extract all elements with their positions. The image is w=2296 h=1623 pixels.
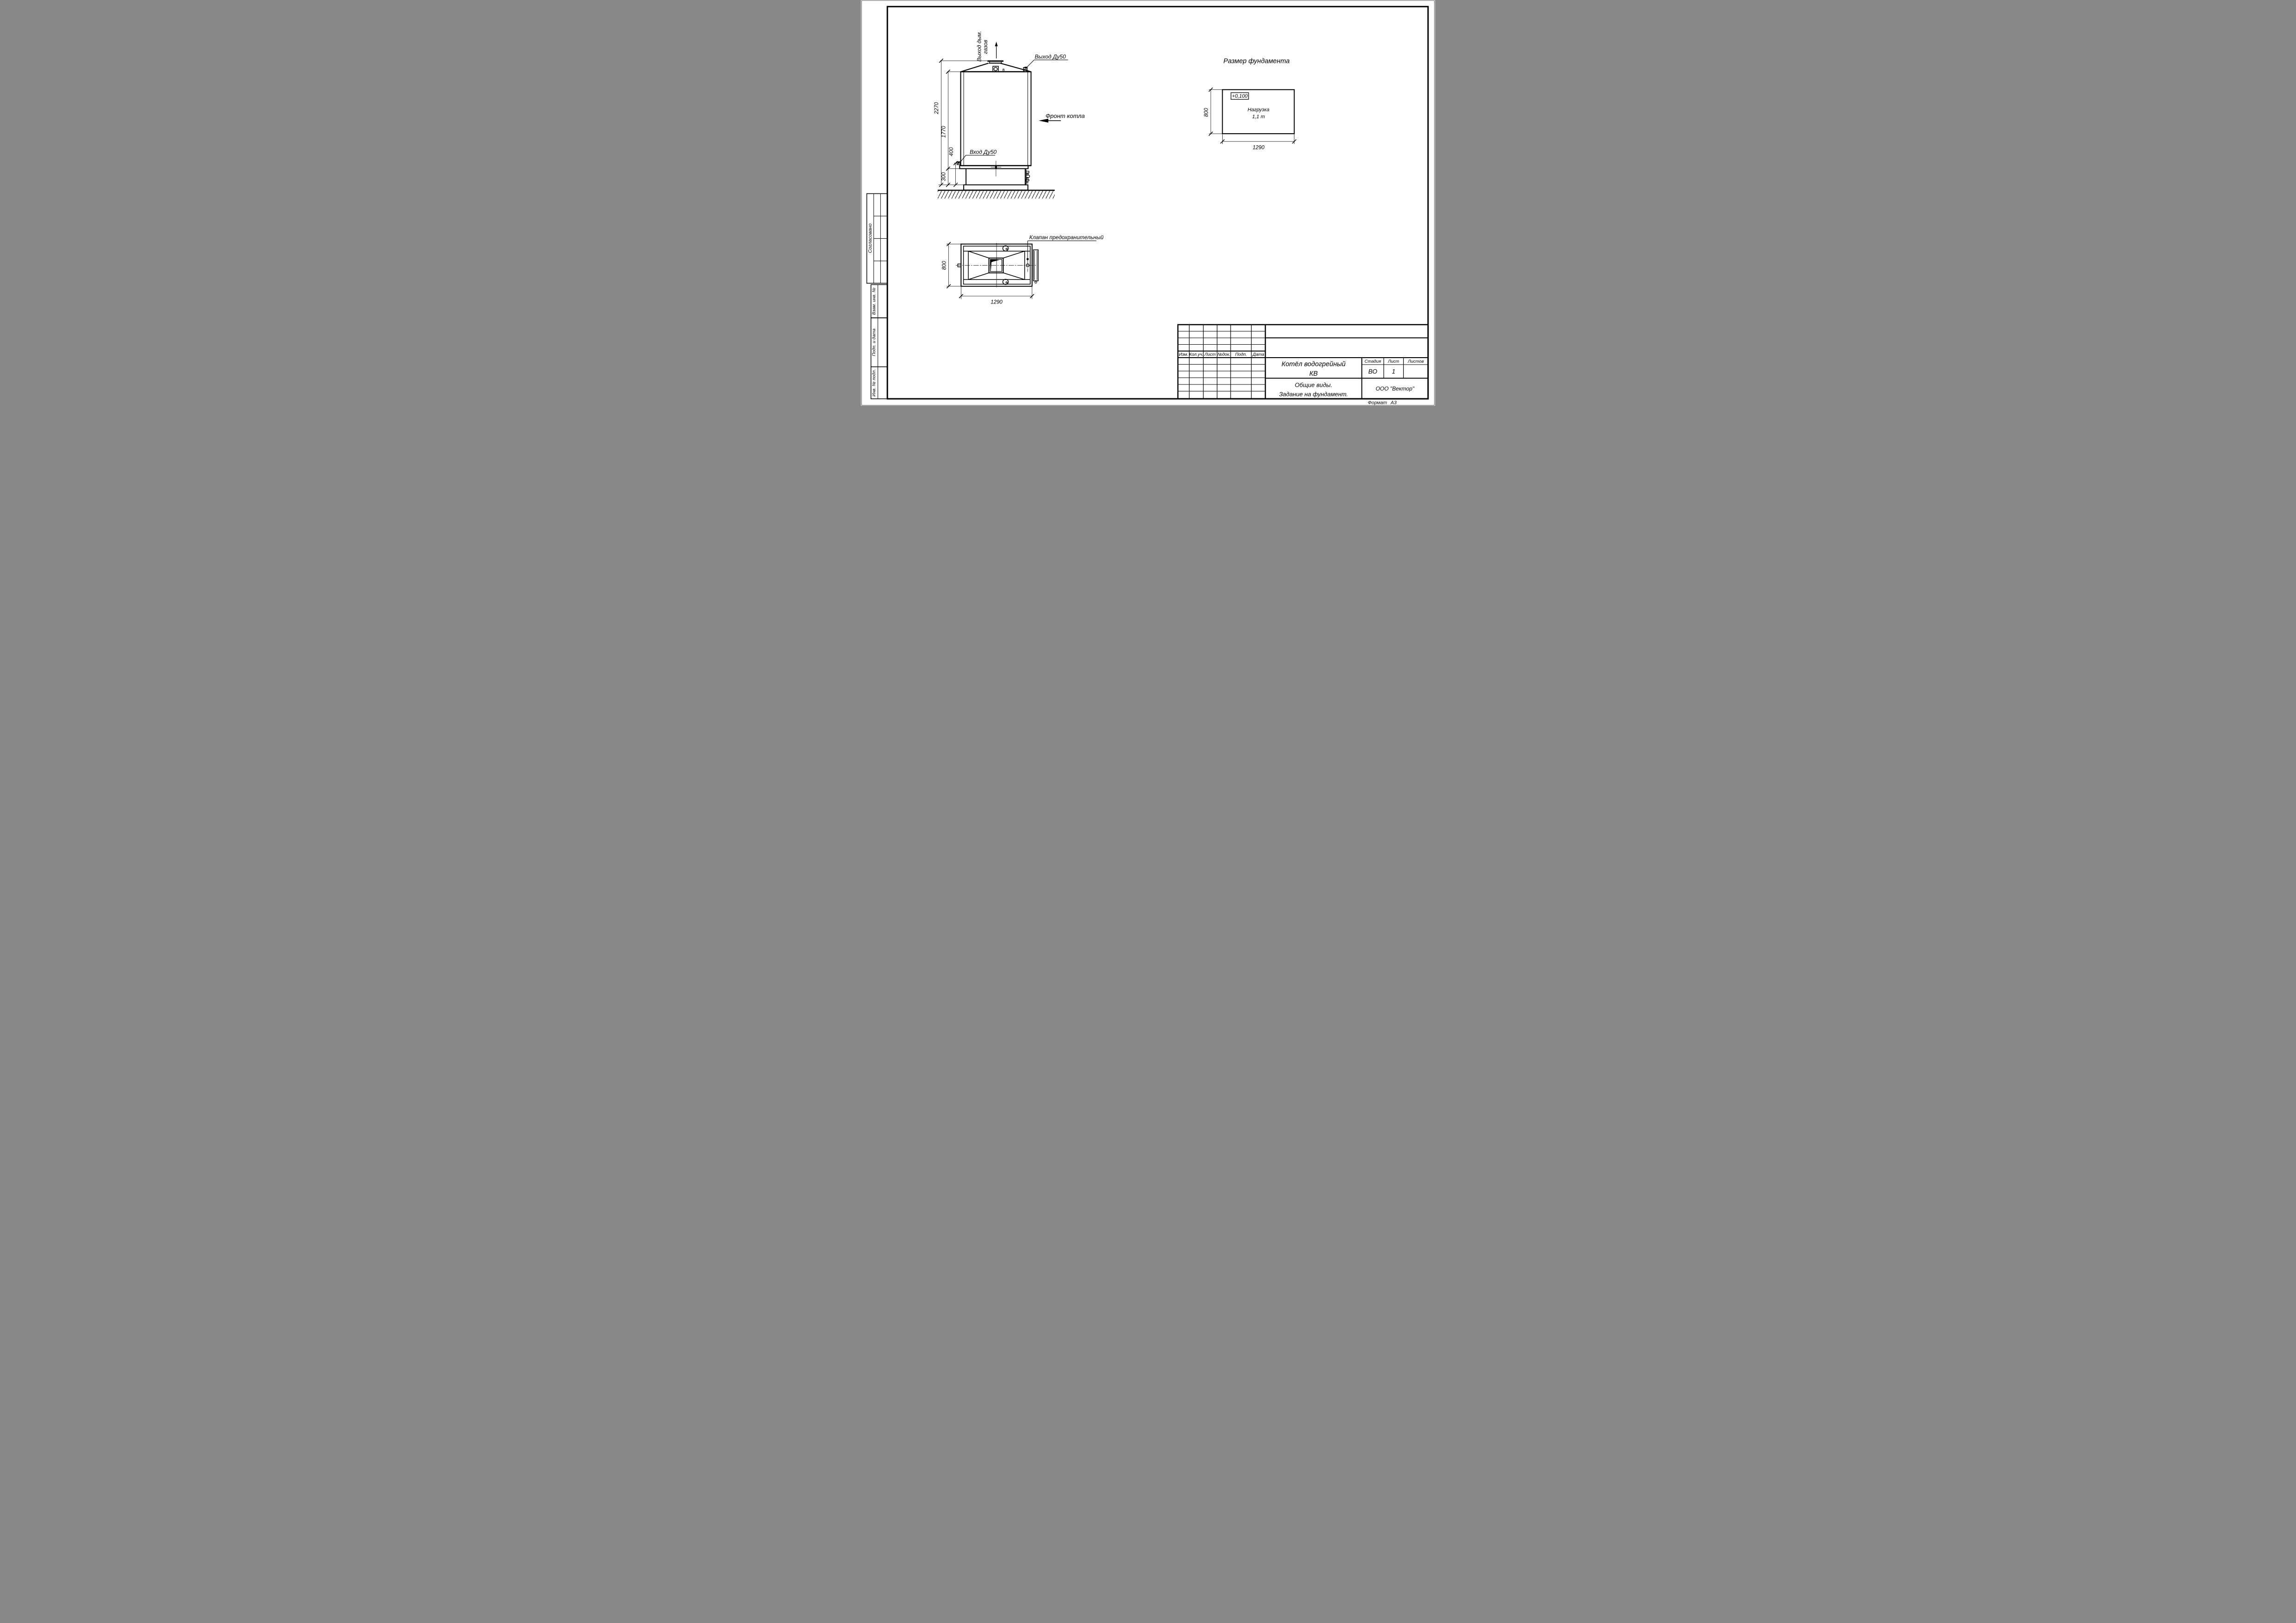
drawing-sheet: Выход дым. газов Выход Ду50 Фронт котла — [861, 0, 1435, 406]
plan-dim-width: 1290 — [990, 299, 1003, 305]
sheet-header: Лист — [1387, 359, 1399, 364]
dim-inlet-height: 400 — [949, 147, 954, 156]
rev-header-list: Лист — [1204, 352, 1216, 357]
flue-gas-label-line1: Выход дым. — [976, 31, 983, 62]
foundation-title: Размер фундамента — [1224, 57, 1290, 65]
dim-foundation-height: 300 — [941, 172, 947, 181]
format-value: А3 — [1390, 400, 1397, 406]
valve-label: Клапан предохранительный — [1029, 234, 1104, 241]
rev-header-koluch: Кол.уч. — [1189, 352, 1203, 357]
replace-inv-label: Взам. инв. № — [872, 288, 877, 315]
agreed-label: Согласовано — [867, 223, 873, 253]
outlet-label: Выход Ду50 — [1035, 53, 1066, 60]
inlet-label: Вход Ду50 — [970, 149, 996, 155]
doc-title-line2: КВ — [1309, 370, 1318, 378]
ground-hatch — [938, 191, 1055, 199]
ground — [938, 190, 1055, 198]
subtitle-line2: Задание на фундамент. — [1279, 390, 1348, 397]
foundation-dim-width: 1290 — [1253, 145, 1265, 151]
elevation-mark: +0,100 — [1232, 93, 1248, 99]
drawing-canvas: Выход дым. газов Выход Ду50 Фронт котла — [861, 0, 1435, 406]
flue-gas-label-line2: газов — [982, 40, 989, 54]
rev-header-ndok: №док. — [1218, 352, 1231, 357]
dim-total-height: 2270 — [934, 102, 940, 114]
load-label-line2: 1,1 т — [1252, 114, 1265, 120]
dim-body-height: 1770 — [941, 126, 947, 138]
rev-header-izm: Изм. — [1179, 352, 1188, 357]
boiler-front-label: Фронт котла — [1046, 112, 1085, 119]
stage-value: ВО — [1368, 368, 1378, 375]
rev-header-data: Дата — [1252, 352, 1264, 357]
sheets-header: Листов — [1407, 359, 1424, 364]
company-name: ООО "Вектор" — [1376, 385, 1415, 392]
inv-orig-label: Инв. № подл. — [872, 369, 877, 396]
flue-flange-icon — [987, 61, 1003, 62]
sheet-value: 1 — [1392, 368, 1396, 375]
foundation-dim-depth: 800 — [1204, 108, 1209, 117]
rev-header-podp: Подп. — [1235, 352, 1247, 357]
load-label-line1: Нагрузка — [1248, 107, 1269, 113]
doc-title-line1: Котёл водогрейный — [1281, 360, 1345, 368]
format-label: Формат — [1368, 400, 1387, 406]
plan-dim-depth: 800 — [941, 261, 947, 270]
subtitle-line1: Общие виды. — [1295, 381, 1332, 388]
stage-header: Стадия — [1365, 359, 1381, 364]
sign-date-label: Подп. и дата — [872, 328, 877, 356]
